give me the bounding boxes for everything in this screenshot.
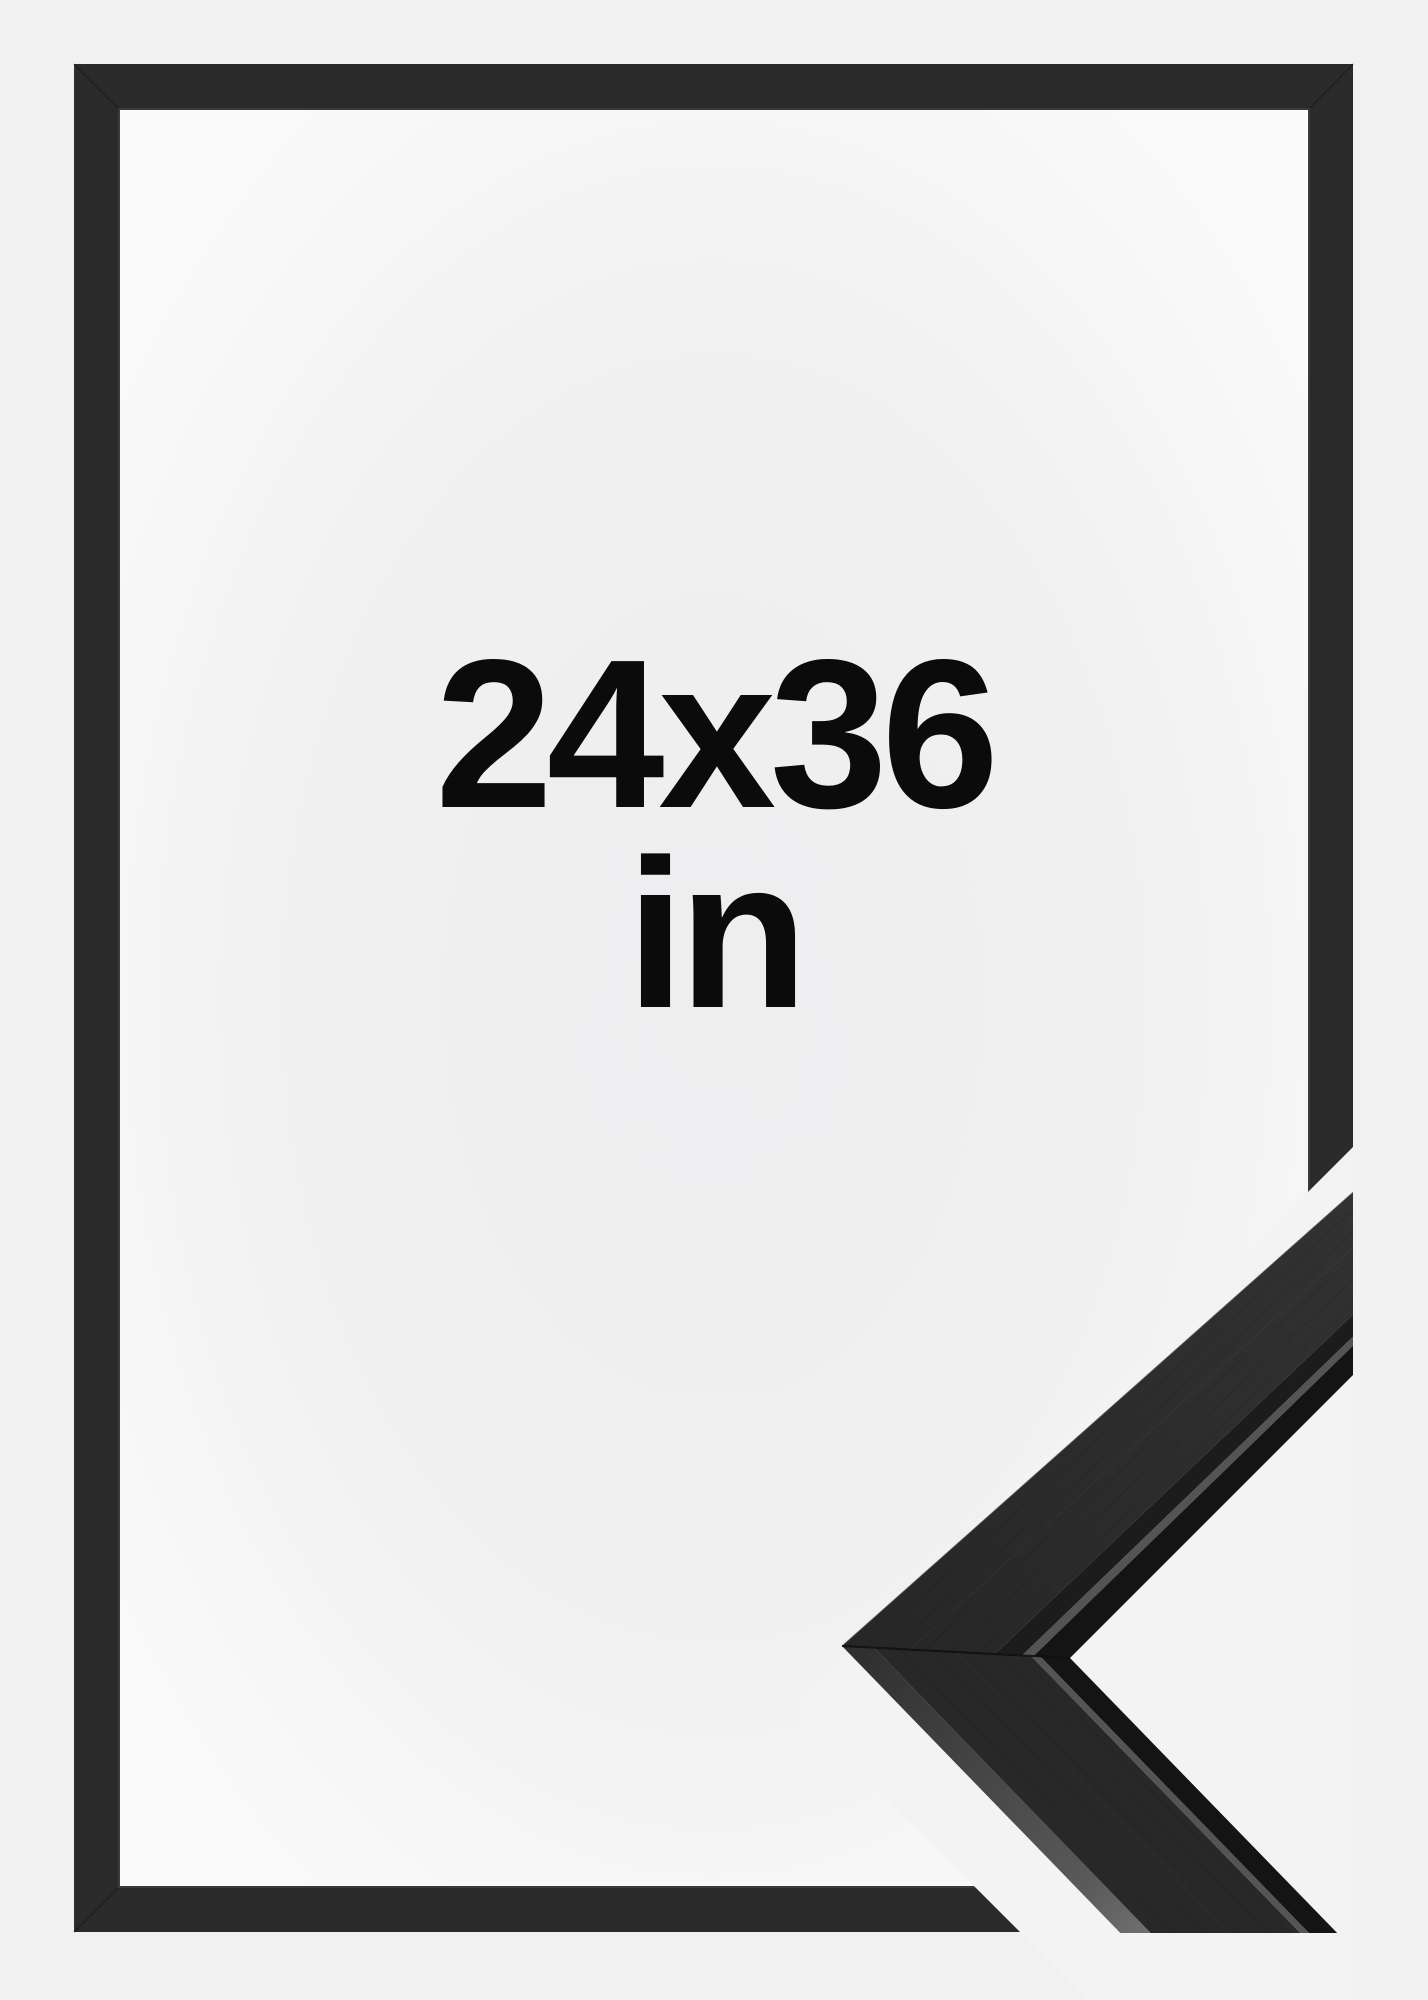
product-image: 24x36 in <box>0 0 1428 2000</box>
size-dimensions-label: 24x36 <box>0 628 1428 840</box>
size-unit-label: in <box>0 828 1428 1040</box>
